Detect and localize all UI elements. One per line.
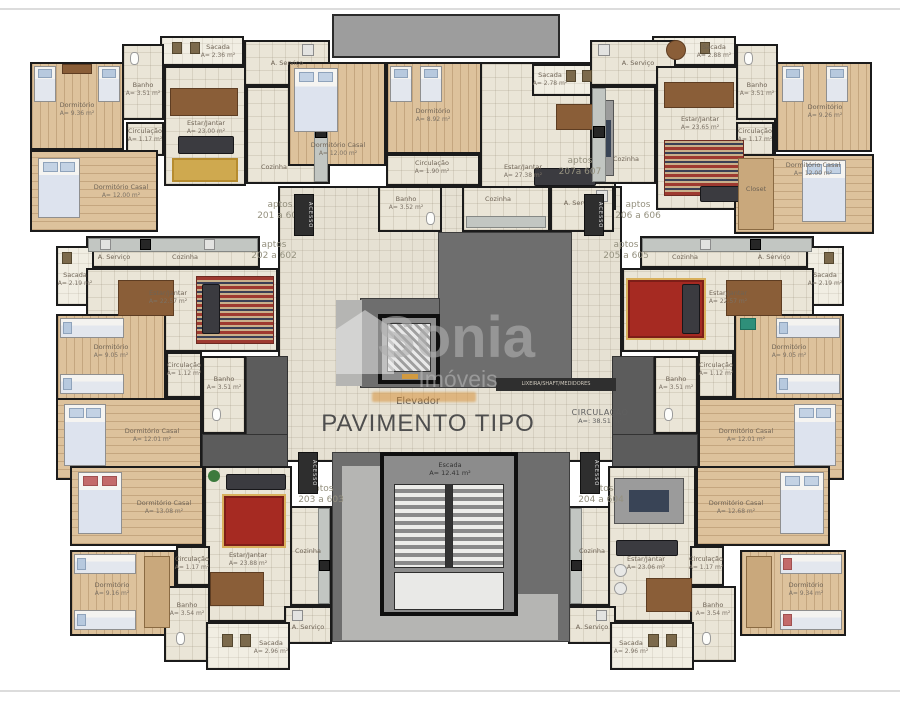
kitchen-counter [570, 508, 582, 604]
washer [302, 44, 314, 56]
room-label: Dormitório CasalA= 12.00 m² [88, 184, 154, 199]
page-top-rule [0, 8, 900, 10]
stair-flight [452, 484, 504, 568]
access-mat: ACESSO [580, 452, 600, 494]
room-label: Dormitório CasalA= 12.01 m² [112, 428, 192, 443]
balcony-chair [666, 634, 677, 647]
room-label: CirculaçãoA= 1.17 m² [684, 556, 728, 571]
washer [596, 610, 607, 621]
upper-core-slab [332, 14, 560, 58]
stove [593, 126, 605, 138]
single-bed [780, 554, 842, 574]
single-bed [826, 66, 848, 102]
single-bed [390, 66, 412, 102]
trash-shaft-bar: LIXEIRA/SHAFT/MEDIDORES [496, 378, 616, 391]
room-label: A. Serviço [250, 60, 324, 68]
room-label: Estar/JantarA= 23.00 m² [168, 120, 244, 135]
kitchen-counter [318, 508, 330, 604]
room-label: DormitórioA= 9.26 m² [790, 104, 860, 119]
dresser [62, 64, 92, 74]
dining-table [664, 82, 734, 108]
room-label: DormitórioA= 8.92 m² [398, 108, 468, 123]
apt205-bath-room [654, 356, 698, 434]
elevator-label: Elevador [368, 396, 468, 407]
core-light-slab [336, 300, 362, 386]
sofa [682, 284, 700, 334]
washer [100, 239, 111, 250]
toilet [744, 52, 753, 65]
room-label: A. Serviço [748, 254, 800, 262]
room-label: SacadaA= 2.96 m² [612, 640, 650, 655]
toilet [426, 212, 435, 225]
room-label: Cozinha [160, 254, 210, 262]
room-label: Cozinha [288, 548, 328, 556]
washer [292, 610, 303, 621]
room-label: Dormitório CasalA= 12.68 m² [700, 500, 772, 515]
room-label: Estar/JantarA= 23.06 m² [614, 556, 678, 571]
room-label: Dormitório CasalA= 12.00 m² [776, 162, 850, 177]
room-label: BanhoA= 3.52 m² [382, 196, 430, 211]
plant [208, 470, 220, 482]
kitchen-counter [466, 216, 546, 228]
dining-table [170, 88, 238, 116]
room-label: SacadaA= 2.19 m² [806, 272, 844, 287]
room-label: DormitórioA= 9.05 m² [76, 344, 146, 359]
apartment-label-202-602: aptos202 a 602 [238, 240, 310, 263]
stove [750, 239, 761, 250]
room-label: Estar/JantarA= 23.88 m² [208, 552, 288, 567]
double-bed [794, 404, 836, 466]
toilet [130, 52, 139, 65]
room-label: A. Serviço [284, 624, 332, 632]
balcony-chair [240, 634, 251, 647]
room-label: Cozinha [572, 548, 612, 556]
room-label: DormitórioA= 9.36 m² [42, 102, 112, 117]
toilet [176, 632, 185, 645]
room-label: DormitórioA= 9.05 m² [754, 344, 824, 359]
single-bed [98, 66, 120, 102]
apt204-bath-room [690, 586, 736, 662]
sofa [226, 474, 286, 490]
kitchen-counter [642, 238, 812, 252]
stairwell: Escada A= 12.41 m² [380, 452, 518, 616]
apt203-bath-room [164, 586, 210, 662]
room-label: Cozinha [244, 164, 304, 172]
room-label: DormitórioA= 9.16 m² [80, 582, 144, 597]
toilet [664, 408, 673, 421]
access-mat: ACESSO [298, 452, 318, 494]
room-label: BanhoA= 3.51 m² [202, 376, 246, 391]
fridge [204, 239, 215, 250]
floor-title: PAVIMENTO TIPO [290, 410, 566, 438]
single-bed [776, 318, 840, 338]
room-label: SacadaA= 2.88 m² [692, 44, 736, 59]
apartment-label-205-605: aptos205 a 605 [592, 240, 660, 263]
closet-cabinet [738, 158, 774, 230]
toilet [702, 632, 711, 645]
single-bed [60, 318, 124, 338]
room-label: Closet [738, 186, 774, 194]
toilet [212, 408, 221, 421]
double-bed [64, 404, 106, 466]
access-mat: ACESSO [294, 194, 314, 236]
single-bed [60, 374, 124, 394]
stair-flight [394, 484, 446, 568]
room-label: Cozinha [660, 254, 710, 262]
single-bed [776, 374, 840, 394]
washer [598, 44, 610, 56]
sofa [616, 540, 678, 556]
room-label: CirculaçãoA= 1.17 m² [170, 556, 214, 571]
access-mat: ACESSO [584, 194, 604, 236]
double-bed [38, 158, 80, 218]
room-label: Dormitório CasalA= 13.08 m² [128, 500, 200, 515]
stove [140, 239, 151, 250]
room-label: Dormitório CasalA= 12.01 m² [706, 428, 786, 443]
rug [222, 494, 286, 548]
rug [172, 158, 238, 182]
stairs-label: Escada A= 12.41 m² [394, 462, 506, 478]
elevator-sill [402, 374, 418, 379]
room-label: BanhoA= 3.54 m² [164, 602, 210, 617]
page-bottom-rule [0, 690, 900, 692]
round-table [666, 40, 686, 60]
room-label: Cozinha [598, 156, 654, 164]
wardrobe [746, 556, 772, 628]
dining-table [210, 572, 264, 606]
single-bed [74, 610, 136, 630]
double-bed [294, 68, 338, 132]
room-label: BanhoA= 3.51 m² [122, 82, 164, 97]
room-label: SacadaA= 2.19 m² [56, 272, 94, 287]
room-label: BanhoA= 3.54 m² [690, 602, 736, 617]
floor-plan: SacadaA= 2.36 m² A. Serviço BanhoA= 3.51… [0, 0, 900, 702]
balcony-chair [824, 252, 834, 264]
room-label: A. Serviço [90, 254, 138, 262]
double-bed [780, 472, 824, 534]
armchair [614, 582, 627, 595]
single-bed [420, 66, 442, 102]
elevator-shaft [378, 314, 440, 384]
single-bed [782, 66, 804, 102]
washer [700, 239, 711, 250]
single-bed [74, 554, 136, 574]
room-label: Estar/JantarA= 22.57 m² [700, 290, 756, 305]
wardrobe [144, 556, 170, 628]
balcony-chair [582, 70, 592, 82]
room-label: CirculaçãoA= 1.12 m² [694, 362, 738, 377]
room-label: Cozinha [468, 196, 528, 204]
single-bed [780, 610, 842, 630]
stair-landing [394, 572, 504, 610]
room-label: SacadaA= 2.96 m² [252, 640, 290, 655]
apt202-bath-room [202, 356, 246, 434]
balcony-chair [222, 634, 233, 647]
core-dark-slab [438, 232, 572, 388]
room-label: BanhoA= 3.51 m² [736, 82, 778, 97]
room-label: SacadaA= 2.36 m² [196, 44, 240, 59]
stove [571, 560, 582, 571]
room-label: CirculaçãoA= 1.12 m² [162, 362, 206, 377]
elevator-car [387, 323, 431, 372]
stove [319, 560, 330, 571]
stair-divider [446, 484, 452, 568]
room-label: BanhoA= 3.51 m² [654, 376, 698, 391]
room-label: CirculaçãoA= 1.17 m² [734, 128, 776, 143]
room-label: A. Serviço [568, 624, 616, 632]
wardrobe [740, 318, 756, 330]
dining-table [646, 578, 692, 612]
sofa [178, 136, 234, 154]
double-bed [78, 472, 122, 534]
room-label: A. Serviço [606, 60, 670, 68]
balcony-chair [172, 42, 182, 54]
room-label: CirculaçãoA= 1.90 m² [402, 160, 462, 175]
room-label: Estar/JantarA= 22.57 m² [140, 290, 196, 305]
room-label: DormitórioA= 9.34 m² [774, 582, 838, 597]
room-label: Estar/JantarA= 23.65 m² [660, 116, 740, 131]
single-bed [34, 66, 56, 102]
room-label: Dormitório CasalA= 12.00 m² [298, 142, 378, 157]
room-label: SacadaA= 2.78 m² [532, 72, 568, 87]
balcony-chair [62, 252, 72, 264]
apartment-label-206-606: aptos206 a 606 [604, 200, 672, 223]
sofa [202, 284, 220, 334]
circulation-label: CIRCULAÇÃO A=: 38.51 m² [548, 408, 652, 425]
kitchen-counter [88, 238, 258, 252]
room-label: CirculaçãoA= 1.17 m² [124, 128, 166, 143]
